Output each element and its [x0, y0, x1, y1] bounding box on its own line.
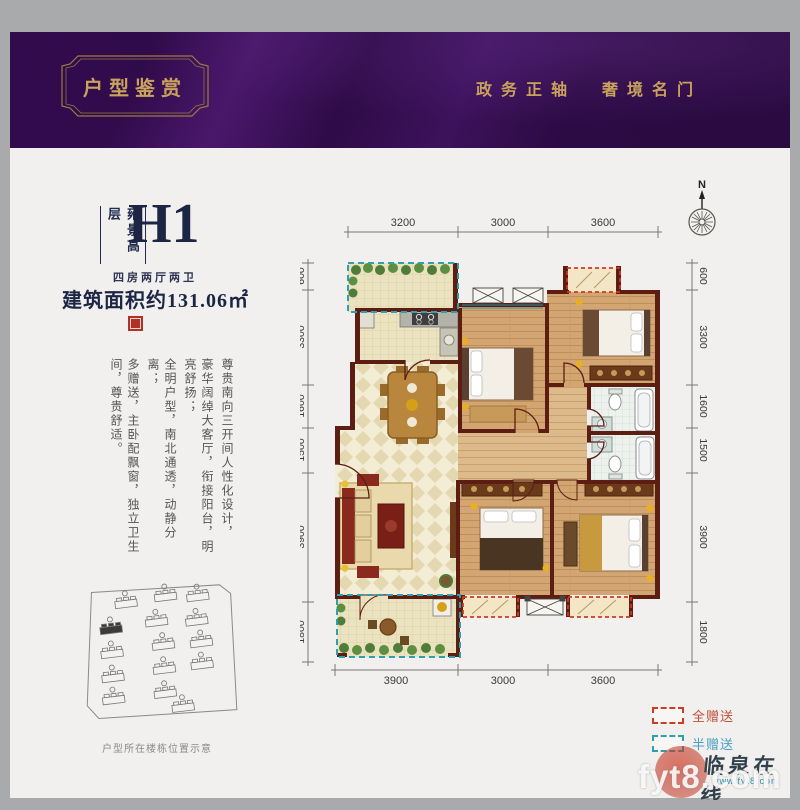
dining-table	[380, 366, 445, 444]
siteplan-caption: 户型所在楼栋位置示意	[102, 740, 212, 755]
svg-text:1600: 1600	[697, 394, 709, 418]
svg-text:3600: 3600	[591, 217, 615, 229]
svg-text:N: N	[698, 179, 706, 191]
bay-window-north	[567, 268, 620, 292]
page-gutter-right	[790, 0, 800, 808]
desc-col-2: 豪华阔绰大客厅，衔接阳台，明亮舒扬；	[181, 358, 215, 554]
balcony-table	[380, 619, 396, 635]
bed-bedroom-2	[462, 338, 534, 423]
svg-text:600: 600	[300, 267, 307, 285]
svg-text:3000: 3000	[491, 217, 515, 229]
slogan-right: 奢境名门	[602, 76, 702, 100]
svg-text:3200: 3200	[391, 217, 415, 229]
full-gift-swatch	[652, 707, 684, 724]
dimension-bottom-labels: 3900 3000 3600	[384, 675, 615, 687]
desc-col-3: 全明户型，南北通透，动静分离；	[144, 358, 178, 554]
svg-text:1800: 1800	[300, 620, 307, 644]
page-gutter-bottom	[0, 800, 800, 808]
banner-slogan: 政务正轴 奢境名门	[476, 76, 702, 100]
watermark-overlay: fyt8.com	[638, 758, 782, 796]
bay-window-south-2	[568, 597, 631, 617]
svg-text:1500: 1500	[300, 438, 307, 462]
plant-pot	[440, 575, 452, 587]
legend-full-gift: 全赠送	[652, 706, 734, 725]
banner-title: 户型鉴赏	[60, 54, 210, 118]
unit-layout: 四房两厅两卫	[113, 269, 197, 285]
unit-description: 尊贵南向三开间人性化设计， 豪华阔绰大客厅，衔接阳台，明亮舒扬； 全明户型，南北…	[104, 358, 238, 554]
compass-icon: N	[689, 179, 715, 235]
svg-text:600: 600	[697, 267, 709, 285]
svg-text:1500: 1500	[697, 438, 709, 462]
living-sofa	[340, 474, 412, 578]
svg-text:3900: 3900	[300, 525, 307, 549]
floor-plan: 3200 3000 3600 3900 3000 3600 600 3300 1…	[300, 178, 748, 690]
tv-cabinet	[450, 502, 456, 558]
desc-col-1: 尊贵南向三开间人性化设计，	[218, 358, 235, 554]
svg-text:3300: 3300	[300, 325, 307, 349]
desc-col-4: 多赠送，主卧配飘窗，独立卫生间，尊贵舒适。	[107, 358, 141, 554]
svg-text:1600: 1600	[300, 394, 307, 418]
poster: { "banner": { "title": "户型鉴赏", "slogan_l…	[0, 0, 800, 808]
svg-text:3600: 3600	[591, 675, 615, 687]
slogan-left: 政务正轴	[476, 76, 576, 100]
svg-text:1800: 1800	[697, 620, 709, 644]
dimension-right	[686, 259, 698, 666]
dimension-top-labels: 3200 3000 3600	[391, 217, 615, 229]
svg-text:3000: 3000	[491, 675, 515, 687]
svg-text:3900: 3900	[697, 525, 709, 549]
unit-area: 建筑面积约131.06㎡	[62, 284, 249, 313]
dimension-right-labels: 600 3300 1600 1500 3900 1800	[697, 267, 709, 644]
siteplan-highlight-building	[99, 616, 123, 635]
siteplan	[70, 578, 265, 738]
unit-code: H1	[128, 196, 200, 252]
banner: 户型鉴赏 政务正轴 奢境名门	[10, 32, 790, 148]
dimension-left-labels: 600 3300 1600 1500 3900 1800	[300, 267, 307, 644]
red-seal-icon	[128, 316, 143, 331]
bay-window-south-1	[463, 597, 518, 617]
svg-text:3300: 3300	[697, 325, 709, 349]
full-gift-label: 全赠送	[692, 706, 734, 725]
svg-text:3900: 3900	[384, 675, 408, 687]
